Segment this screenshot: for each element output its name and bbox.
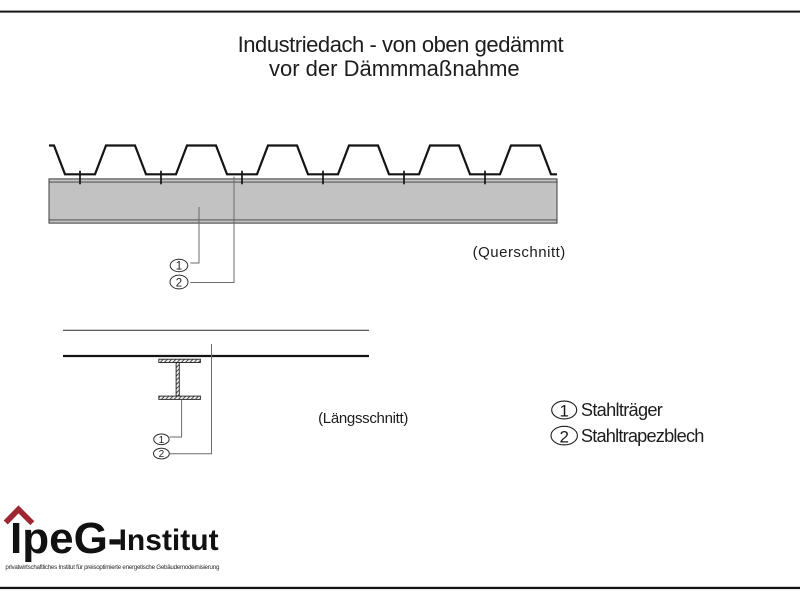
svg-text:2: 2 [176,277,182,289]
svg-text:2: 2 [159,449,165,460]
svg-text:1: 1 [559,401,568,420]
svg-text:1: 1 [159,435,165,446]
svg-text:1: 1 [176,261,182,273]
svg-text:2: 2 [559,428,568,447]
